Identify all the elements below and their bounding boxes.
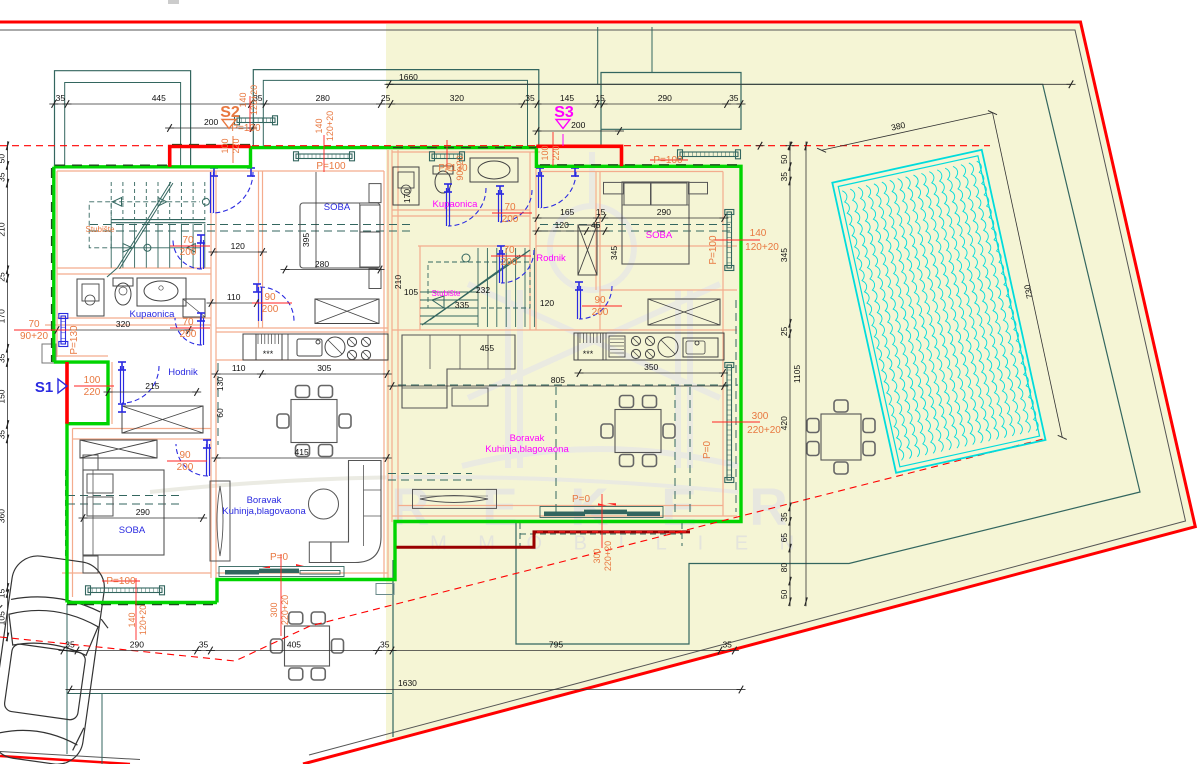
- svg-text:Stubište: Stubište: [86, 225, 115, 234]
- svg-text:200: 200: [262, 304, 279, 315]
- svg-text:445: 445: [152, 93, 166, 103]
- svg-text:S2: S2: [220, 104, 240, 121]
- svg-text:805: 805: [551, 375, 565, 385]
- svg-text:50: 50: [0, 154, 7, 164]
- svg-text:232: 232: [476, 285, 490, 295]
- svg-text:15: 15: [596, 207, 606, 217]
- svg-text:P=100: P=100: [708, 235, 719, 265]
- svg-text:35: 35: [0, 172, 7, 182]
- svg-text:130: 130: [215, 377, 225, 391]
- svg-text:220+20: 220+20: [603, 541, 613, 571]
- svg-text:***: ***: [583, 349, 594, 359]
- svg-text:Kuhinja,blagovaona: Kuhinja,blagovaona: [222, 506, 306, 517]
- svg-text:1660: 1660: [399, 72, 418, 82]
- svg-text:35: 35: [0, 353, 7, 363]
- svg-text:R E K E R: R E K E R: [391, 478, 806, 537]
- svg-text:90+20: 90+20: [455, 155, 465, 180]
- svg-text:100: 100: [84, 375, 101, 386]
- svg-text:110: 110: [227, 292, 241, 302]
- svg-text:P=100: P=100: [231, 123, 261, 134]
- svg-text:65: 65: [779, 533, 789, 543]
- svg-text:P=130: P=130: [69, 325, 80, 355]
- svg-text:170: 170: [0, 309, 7, 323]
- svg-text:360: 360: [0, 509, 7, 523]
- svg-text:200: 200: [180, 247, 197, 258]
- svg-text:100: 100: [220, 138, 230, 153]
- svg-text:SOBA: SOBA: [324, 202, 351, 213]
- svg-text:35: 35: [0, 430, 7, 440]
- svg-text:Boravak: Boravak: [247, 495, 282, 506]
- svg-text:335: 335: [455, 300, 469, 310]
- svg-text:Stubište: Stubište: [432, 289, 461, 298]
- svg-text:P=0: P=0: [702, 441, 713, 460]
- svg-text:70: 70: [503, 245, 515, 256]
- svg-text:50: 50: [779, 589, 789, 599]
- svg-text:P=100: P=100: [316, 161, 346, 172]
- svg-text:210: 210: [0, 222, 7, 236]
- svg-text:P=0: P=0: [270, 552, 289, 563]
- svg-text:280: 280: [316, 93, 330, 103]
- svg-text:215: 215: [145, 381, 159, 391]
- svg-text:1105: 1105: [792, 365, 802, 384]
- svg-text:200: 200: [177, 462, 194, 473]
- svg-text:145: 145: [560, 93, 574, 103]
- svg-text:220: 220: [551, 145, 561, 160]
- svg-text:35: 35: [722, 640, 732, 650]
- svg-text:80: 80: [779, 563, 789, 573]
- svg-text:220: 220: [231, 138, 241, 153]
- svg-text:P=100: P=100: [653, 155, 683, 166]
- svg-text:200: 200: [592, 307, 609, 318]
- svg-text:200: 200: [501, 257, 518, 268]
- svg-text:70: 70: [182, 317, 194, 328]
- svg-text:Rodnik: Rodnik: [536, 253, 566, 264]
- svg-text:220: 220: [84, 387, 101, 398]
- svg-text:140: 140: [238, 92, 248, 107]
- svg-text:210: 210: [393, 275, 403, 289]
- svg-text:70: 70: [444, 163, 454, 173]
- svg-text:P=100: P=100: [106, 576, 136, 587]
- svg-text:15: 15: [0, 589, 7, 599]
- svg-text:120+20: 120+20: [138, 605, 148, 635]
- svg-text:290: 290: [136, 507, 150, 517]
- svg-text:200: 200: [502, 214, 519, 225]
- svg-text:140: 140: [127, 612, 137, 627]
- svg-text:345: 345: [609, 246, 619, 260]
- svg-text:Kupaonica: Kupaonica: [433, 199, 479, 210]
- svg-text:290: 290: [657, 207, 671, 217]
- svg-text:SOBA: SOBA: [646, 230, 673, 241]
- svg-text:345: 345: [779, 248, 789, 262]
- svg-text:455: 455: [480, 343, 494, 353]
- svg-text:90: 90: [179, 450, 191, 461]
- svg-text:200: 200: [571, 120, 585, 130]
- svg-text:25: 25: [381, 93, 391, 103]
- svg-text:280: 280: [315, 259, 329, 269]
- svg-text:165: 165: [560, 207, 574, 217]
- svg-text:320: 320: [116, 319, 130, 329]
- svg-text:140: 140: [750, 228, 767, 239]
- svg-text:150: 150: [0, 389, 7, 403]
- svg-text:140: 140: [314, 118, 324, 133]
- svg-text:405: 405: [287, 640, 301, 650]
- svg-text:50: 50: [779, 154, 789, 164]
- svg-text:35: 35: [779, 512, 789, 522]
- svg-text:60: 60: [215, 408, 225, 418]
- svg-text:35: 35: [56, 93, 66, 103]
- svg-text:70: 70: [182, 235, 194, 246]
- svg-text:70: 70: [28, 319, 40, 330]
- svg-text:220+20: 220+20: [280, 595, 290, 625]
- svg-text:795: 795: [549, 640, 563, 650]
- svg-text:25: 25: [779, 326, 789, 336]
- svg-text:P=0: P=0: [572, 494, 591, 505]
- svg-text:120: 120: [555, 220, 569, 230]
- svg-text:120+20: 120+20: [745, 242, 779, 253]
- svg-text:90: 90: [594, 295, 606, 306]
- svg-text:170: 170: [402, 189, 412, 203]
- svg-text:90: 90: [264, 292, 276, 303]
- svg-text:105: 105: [0, 611, 7, 625]
- svg-text:45: 45: [591, 220, 601, 230]
- svg-text:Kupaonica: Kupaonica: [130, 309, 176, 320]
- svg-text:300: 300: [269, 602, 279, 617]
- svg-text:200: 200: [204, 117, 218, 127]
- svg-text:120: 120: [231, 241, 245, 251]
- svg-text:35: 35: [380, 640, 390, 650]
- svg-text:S1: S1: [35, 379, 53, 396]
- svg-text:320: 320: [450, 93, 464, 103]
- svg-text:Boravak: Boravak: [510, 433, 545, 444]
- svg-text:395: 395: [301, 233, 311, 247]
- svg-text:35: 35: [779, 172, 789, 182]
- svg-text:25: 25: [0, 272, 7, 282]
- svg-text:70: 70: [504, 202, 516, 213]
- svg-text:110: 110: [232, 363, 246, 373]
- svg-text:35: 35: [65, 640, 75, 650]
- svg-text:1630: 1630: [398, 678, 417, 688]
- svg-text:35: 35: [199, 640, 209, 650]
- svg-text:90+20: 90+20: [20, 331, 49, 342]
- svg-text:120+20: 120+20: [325, 111, 335, 141]
- svg-text:35: 35: [729, 93, 739, 103]
- svg-text:300: 300: [592, 548, 602, 563]
- svg-text:35: 35: [525, 93, 535, 103]
- svg-text:***: ***: [263, 349, 274, 359]
- svg-text:290: 290: [130, 640, 144, 650]
- svg-text:200: 200: [180, 329, 197, 340]
- svg-text:290: 290: [658, 93, 672, 103]
- svg-text:Hodnik: Hodnik: [168, 367, 198, 378]
- svg-text:100: 100: [540, 145, 550, 160]
- svg-text:SOBA: SOBA: [119, 525, 146, 536]
- svg-text:Kuhinja,blagovaona: Kuhinja,blagovaona: [485, 444, 569, 455]
- svg-text:350: 350: [644, 362, 658, 372]
- svg-text:120+20: 120+20: [249, 85, 259, 115]
- svg-text:S3: S3: [554, 104, 574, 121]
- svg-text:15: 15: [595, 93, 605, 103]
- svg-text:300: 300: [752, 411, 769, 422]
- svg-text:305: 305: [317, 363, 331, 373]
- svg-text:120: 120: [540, 298, 554, 308]
- svg-text:415: 415: [295, 447, 309, 457]
- svg-text:105: 105: [404, 287, 418, 297]
- svg-text:220+20: 220+20: [747, 425, 781, 436]
